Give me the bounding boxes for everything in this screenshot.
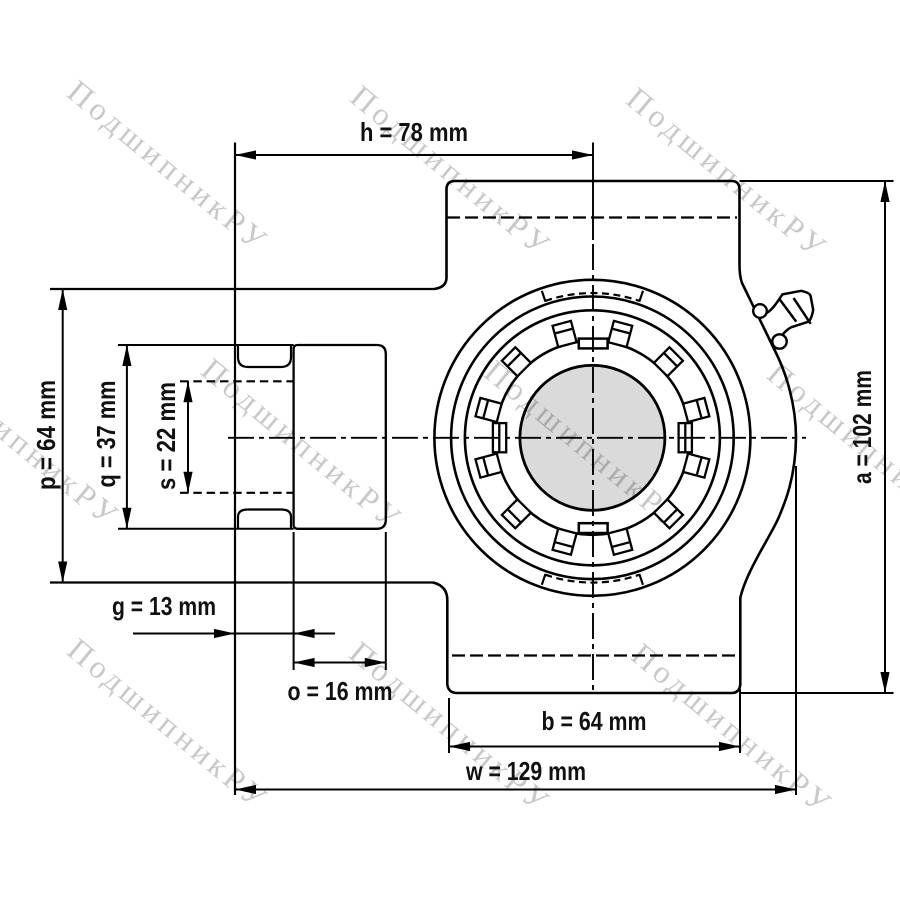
svg-text:p = 64 mm: p = 64 mm xyxy=(31,380,61,490)
svg-text:g = 13 mm: g = 13 mm xyxy=(112,591,216,621)
svg-text:s = 22 mm: s = 22 mm xyxy=(151,382,181,490)
svg-text:b = 64 mm: b = 64 mm xyxy=(542,706,647,736)
svg-text:o = 16 mm: o = 16 mm xyxy=(288,676,393,706)
svg-text:a = 102 mm: a = 102 mm xyxy=(847,370,877,484)
svg-text:h = 78 mm: h = 78 mm xyxy=(360,117,468,147)
svg-text:q = 37 mm: q = 37 mm xyxy=(91,381,121,488)
svg-text:w = 129 mm: w = 129 mm xyxy=(465,756,586,786)
